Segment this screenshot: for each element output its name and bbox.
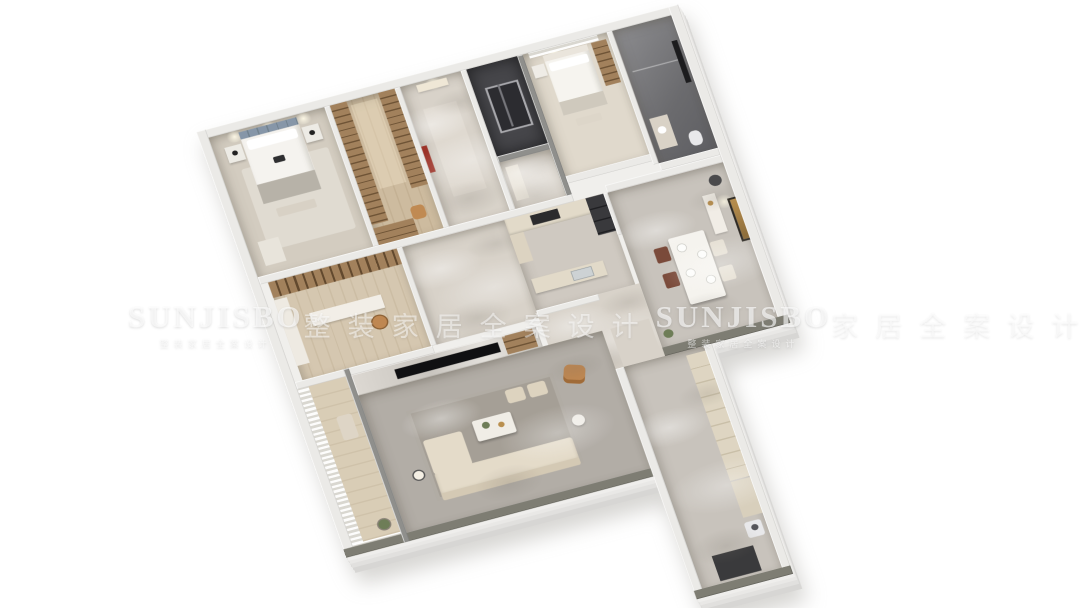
elevator-door-frame	[485, 79, 534, 133]
apartment-3d-scene	[0, 0, 1080, 608]
dining-chair-dark	[653, 246, 672, 264]
potted-plant	[662, 328, 675, 339]
dining-chair-dark	[662, 271, 681, 289]
bed-ottoman	[575, 112, 602, 126]
balcony-plant	[375, 516, 393, 532]
camel-lounge-chair	[563, 364, 586, 384]
leather-office-chair	[369, 313, 391, 332]
kitchen-peninsula	[531, 260, 608, 293]
desk-chair	[707, 173, 723, 187]
floorplan-render-canvas: SUNJISBO 整装家居全案设计 整装家居全案设计 SUNJISBO 整装家居…	[0, 0, 1080, 608]
floor-lamp	[411, 468, 427, 482]
shower-glass	[632, 58, 681, 72]
tilted-plan	[196, 4, 872, 608]
lounge-chair	[336, 413, 360, 441]
toilet	[687, 129, 704, 147]
side-table	[570, 413, 586, 427]
